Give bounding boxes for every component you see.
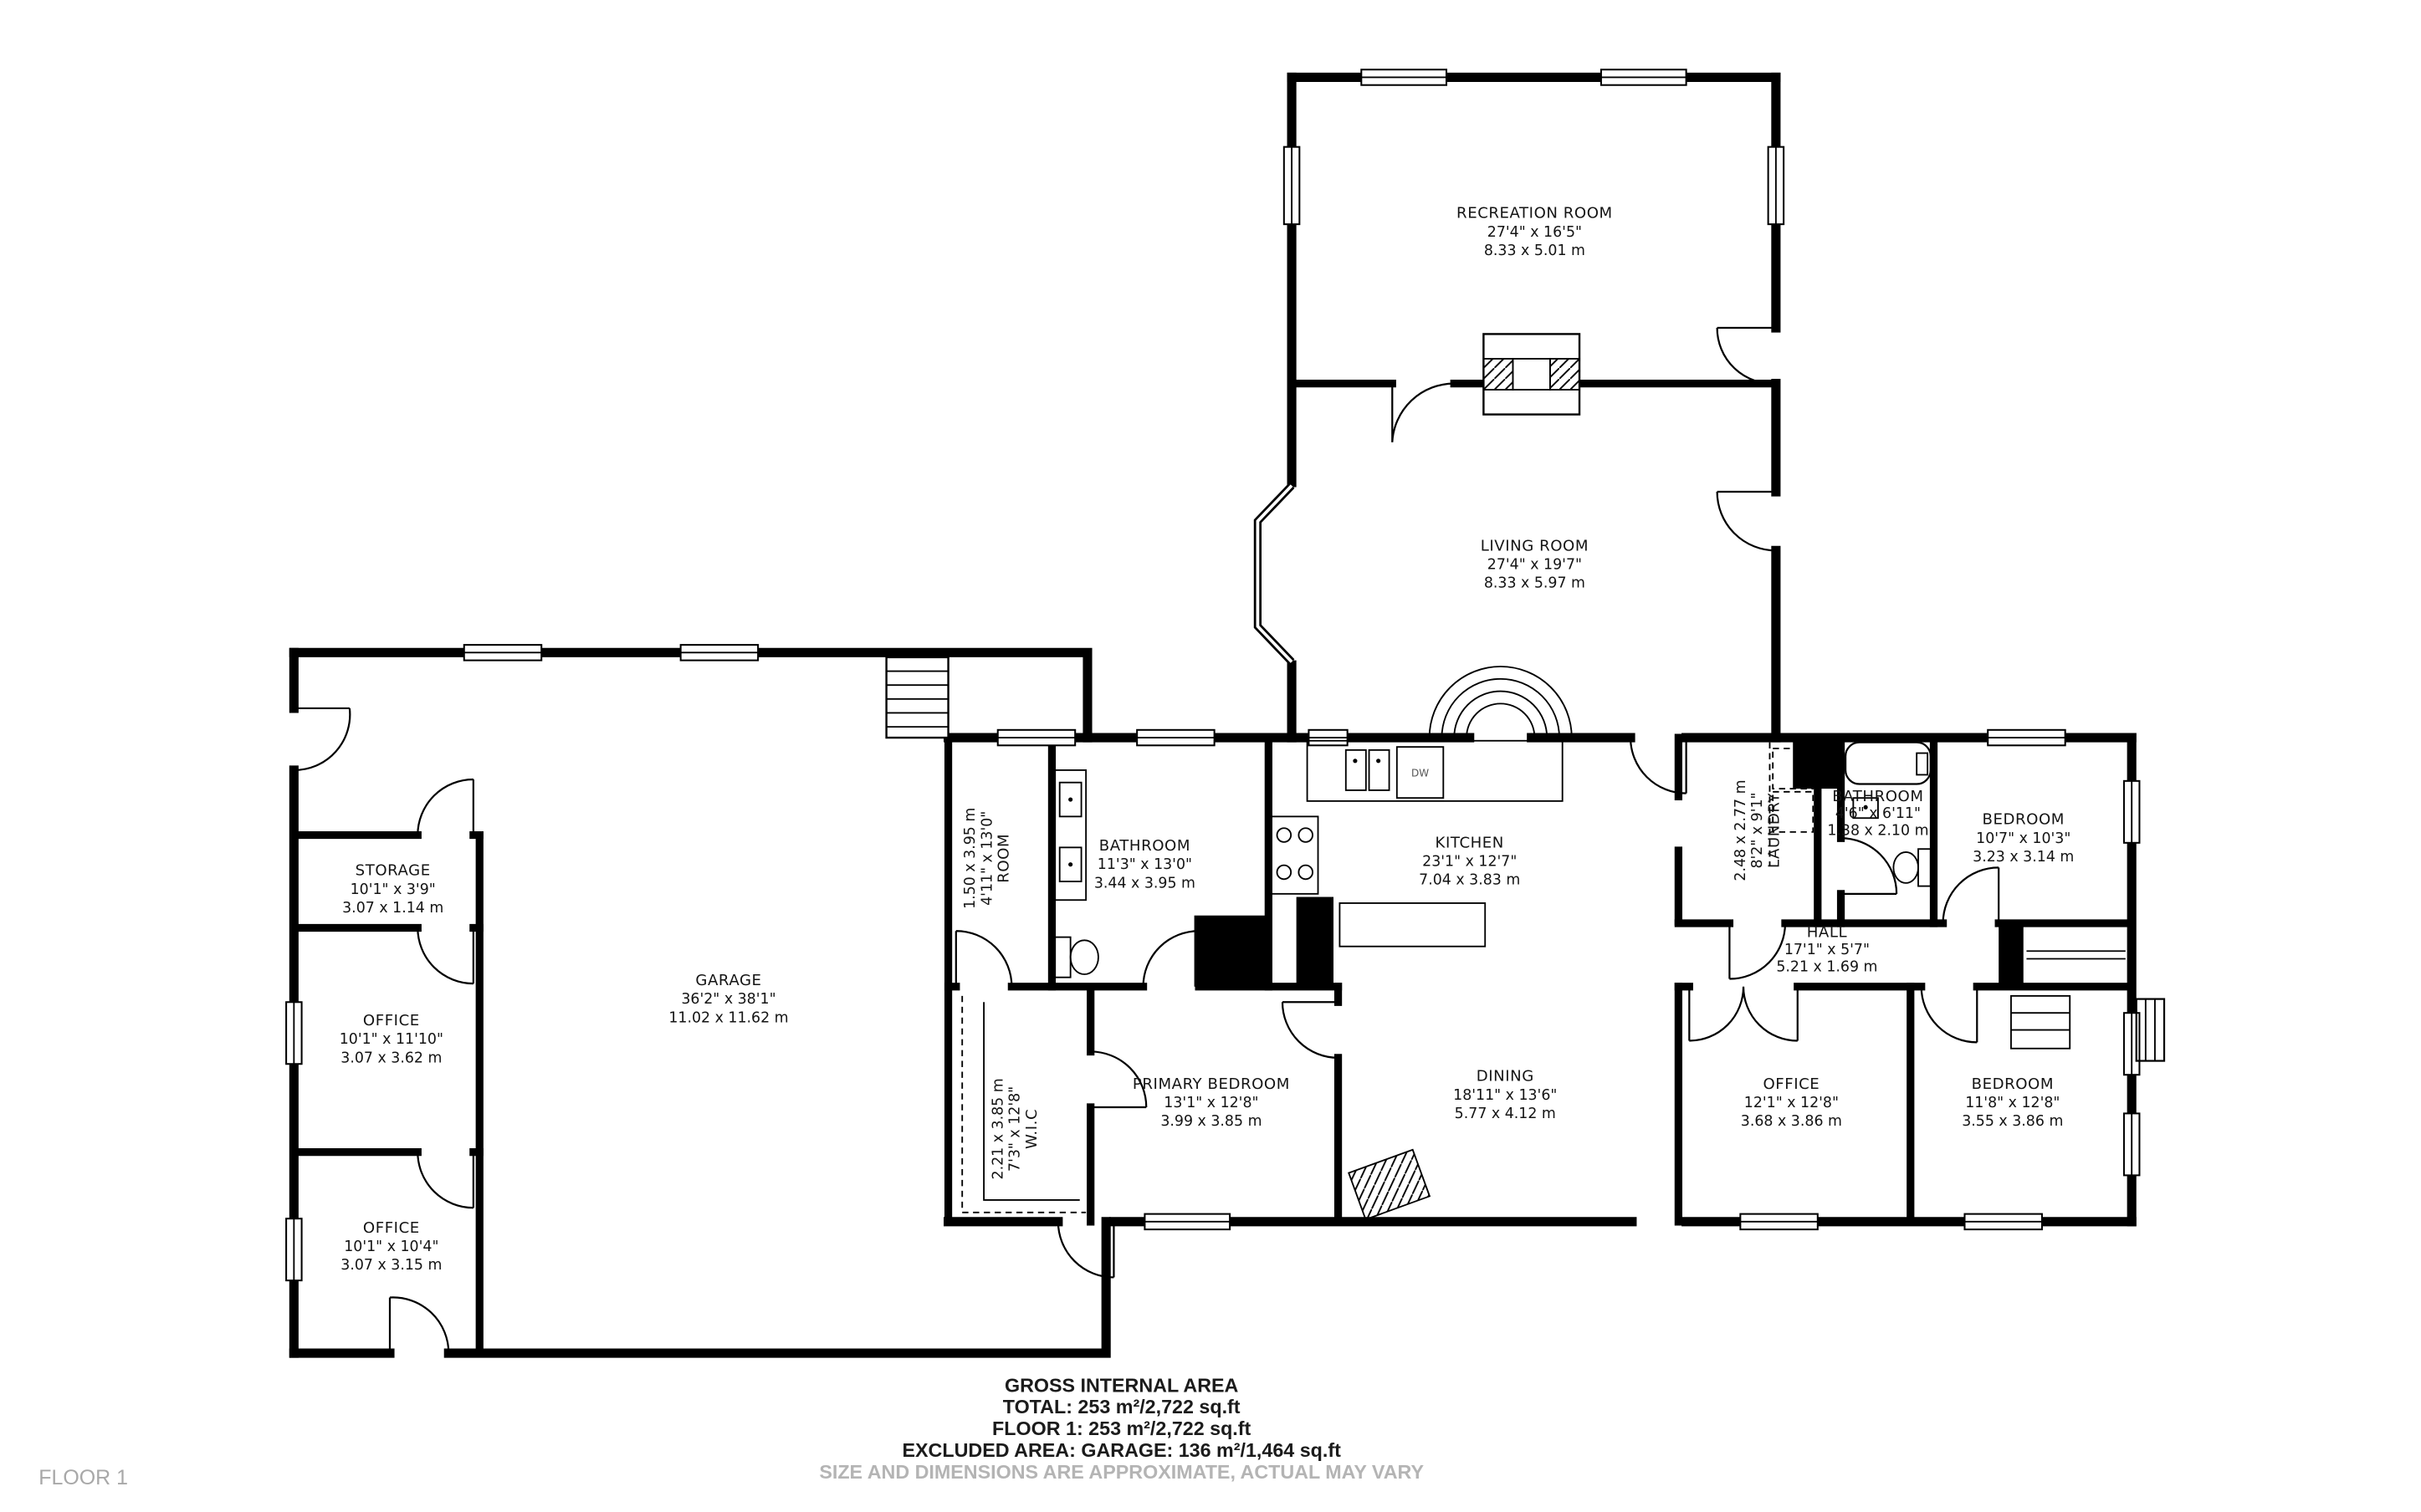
room-label-office-left-2: OFFICE 10'1" x 10'4" 3.07 x 3.15 m <box>340 1219 442 1274</box>
room-dims-imperial: 10'1" x 11'10" <box>340 1031 443 1048</box>
floor-plan-page: DW <box>0 0 2421 1511</box>
room-dims-imperial: 8'2" x 9'1" <box>1749 792 1766 868</box>
room-dims-metric: 5.21 x 1.69 m <box>1776 958 1877 975</box>
room-dims-imperial: 13'1" x 12'8" <box>1164 1095 1258 1111</box>
room-dims-imperial: 27'4" x 19'7" <box>1487 557 1582 574</box>
stove-icon <box>1272 816 1318 893</box>
room-dims-imperial: 36'2" x 38'1" <box>681 991 775 1008</box>
room-label-bedroom-bottom-right: BEDROOM 11'8" x 12'8" 3.55 x 3.86 m <box>1962 1075 2063 1130</box>
room-dims-metric: 1.38 x 2.10 m <box>1827 823 1928 840</box>
floor-plan: DW <box>0 0 2421 1511</box>
kitchen-island <box>1339 903 1485 947</box>
room-dims-imperial: 18'11" x 13'6" <box>1453 1087 1557 1104</box>
room-dims-metric: 3.99 x 3.85 m <box>1160 1113 1262 1130</box>
dishwasher-label: DW <box>1411 767 1429 779</box>
room-dims-imperial: 23'1" x 12'7" <box>1422 854 1517 871</box>
room-name: W.I.C <box>1023 1109 1041 1149</box>
room-dims-metric: 3.44 x 3.95 m <box>1094 875 1195 891</box>
room-name: BEDROOM <box>1972 1075 2054 1093</box>
room-name: BATHROOM <box>1099 837 1190 855</box>
room-dims-imperial: 10'1" x 3'9" <box>351 881 436 898</box>
wic-closet <box>962 996 1086 1213</box>
room-dims-metric: 1.50 x 3.95 m <box>962 808 979 909</box>
bathtub-icon <box>1845 743 1931 784</box>
room-dims-metric: 3.55 x 3.86 m <box>1962 1113 2063 1130</box>
room-name: PRIMARY BEDROOM <box>1133 1075 1290 1093</box>
wall-mass <box>1195 916 1269 987</box>
room-name: OFFICE <box>363 1219 420 1237</box>
room-name: LIVING ROOM <box>1481 537 1589 554</box>
room-name: DINING <box>1477 1068 1534 1085</box>
toilet-icon <box>1893 849 1930 886</box>
room-name: STORAGE <box>356 862 431 880</box>
floor-label: FLOOR 1 <box>38 1466 128 1489</box>
room-label-bathroom-small: BATHROOM 4'6" x 6'11" 1.38 x 2.10 m <box>1827 788 1928 840</box>
room-label-recreation-room: RECREATION ROOM 27'4" x 16'5" 8.33 x 5.0… <box>1456 205 1613 259</box>
room-dims-imperial: 11'8" x 12'8" <box>1965 1095 2060 1111</box>
room-dims-metric: 3.07 x 1.14 m <box>342 900 443 917</box>
exterior-walls <box>294 77 2132 1353</box>
room-dims-imperial: 12'1" x 12'8" <box>1744 1095 1839 1111</box>
room-label-hall: HALL 17'1" x 5'7" 5.21 x 1.69 m <box>1776 924 1877 976</box>
room-dims-imperial: 17'1" x 5'7" <box>1784 942 1870 958</box>
room-dims-metric: 2.48 x 2.77 m <box>1733 779 1749 881</box>
room-dims-metric: 7.04 x 3.83 m <box>1419 872 1520 889</box>
room-dims-imperial: 4'6" x 6'11" <box>1835 805 1921 822</box>
room-label-kitchen: KITCHEN 23'1" x 12'7" 7.04 x 3.83 m <box>1419 834 1520 888</box>
room-dims-metric: 3.68 x 3.86 m <box>1741 1113 1842 1130</box>
room-dims-imperial: 27'4" x 16'5" <box>1487 224 1582 241</box>
room-label-office-right: OFFICE 12'1" x 12'8" 3.68 x 3.86 m <box>1741 1075 1842 1130</box>
room-name: KITCHEN <box>1436 834 1504 851</box>
room-label-wic: W.I.C 7'3" x 12'8" 2.21 x 3.85 m <box>990 1078 1041 1179</box>
room-label-primary-bedroom: PRIMARY BEDROOM 13'1" x 12'8" 3.99 x 3.8… <box>1133 1075 1290 1130</box>
room-dims-metric: 8.33 x 5.97 m <box>1484 575 1585 592</box>
room-label-room: ROOM 4'11" x 13'0" 1.50 x 3.95 m <box>962 808 1013 909</box>
room-dims-imperial: 4'11" x 13'0" <box>979 811 996 906</box>
room-dims-imperial: 7'3" x 12'8" <box>1007 1086 1024 1172</box>
room-label-living-room: LIVING ROOM 27'4" x 19'7" 8.33 x 5.97 m <box>1481 537 1589 591</box>
room-label-storage: STORAGE 10'1" x 3'9" 3.07 x 1.14 m <box>342 862 443 917</box>
fireplace-icon <box>1483 334 1579 414</box>
bay-window <box>1257 486 1292 662</box>
room-name: GARAGE <box>695 972 761 989</box>
room-dims-imperial: 10'7" x 10'3" <box>1976 830 2070 847</box>
room-dims-imperial: 11'3" x 13'0" <box>1098 856 1192 873</box>
dining-feature <box>1349 1150 1430 1219</box>
room-label-office-left-1: OFFICE 10'1" x 11'10" 3.07 x 3.62 m <box>340 1012 443 1066</box>
room-label-bedroom-top-right: BEDROOM 10'7" x 10'3" 3.23 x 3.14 m <box>1973 811 2074 866</box>
sliding-closet-door <box>2026 951 2125 958</box>
room-label-garage: GARAGE 36'2" x 38'1" 11.02 x 11.62 m <box>668 972 788 1026</box>
disclaimer: SIZE AND DIMENSIONS ARE APPROXIMATE, ACT… <box>819 1461 1424 1483</box>
room-name: OFFICE <box>1763 1075 1820 1093</box>
room-name: BEDROOM <box>1983 811 2065 829</box>
excluded-area: EXCLUDED AREA: GARAGE: 136 m²/1,464 sq.f… <box>902 1439 1341 1461</box>
room-dims-metric: 8.33 x 5.01 m <box>1484 243 1585 259</box>
room-dims-metric: 3.23 x 3.14 m <box>1973 849 2074 866</box>
wall-mass <box>1999 927 2024 987</box>
room-dims-metric: 3.07 x 3.15 m <box>340 1257 442 1274</box>
room-dims-metric: 11.02 x 11.62 m <box>668 1009 788 1026</box>
room-name: OFFICE <box>363 1012 420 1029</box>
room-label-laundry: LAUNDRY 8'2" x 9'1" 2.48 x 2.77 m <box>1733 779 1784 881</box>
room-dims-imperial: 10'1" x 10'4" <box>344 1239 438 1255</box>
total-area: TOTAL: 253 m²/2,722 sq.ft <box>1003 1396 1241 1417</box>
wall-mass <box>1297 897 1333 987</box>
toilet-icon <box>1055 937 1098 978</box>
main-bathroom-fixtures <box>1055 770 1098 978</box>
wall-mass <box>1793 738 1842 789</box>
room-dims-metric: 2.21 x 3.85 m <box>990 1078 1006 1179</box>
footer-summary: GROSS INTERNAL AREA TOTAL: 253 m²/2,722 … <box>819 1374 1424 1483</box>
gross-internal-area-title: GROSS INTERNAL AREA <box>1005 1374 1239 1396</box>
room-name: LAUNDRY <box>1766 793 1784 868</box>
room-dims-metric: 5.77 x 4.12 m <box>1455 1106 1556 1122</box>
closet-shelves <box>2011 996 2070 1049</box>
room-label-bathroom-main: BATHROOM 11'3" x 13'0" 3.44 x 3.95 m <box>1094 837 1195 891</box>
room-label-dining: DINING 18'11" x 13'6" 5.77 x 4.12 m <box>1453 1068 1557 1122</box>
room-dims-metric: 3.07 x 3.62 m <box>340 1050 442 1066</box>
stairs-icon <box>887 657 949 738</box>
exterior-steps <box>2137 999 2164 1061</box>
room-name: BATHROOM <box>1832 788 1923 805</box>
archway <box>1430 667 1572 738</box>
room-name: RECREATION ROOM <box>1456 205 1613 222</box>
room-name: HALL <box>1807 924 1847 942</box>
room-name: ROOM <box>996 834 1013 883</box>
floor1-area: FLOOR 1: 253 m²/2,722 sq.ft <box>992 1417 1251 1439</box>
